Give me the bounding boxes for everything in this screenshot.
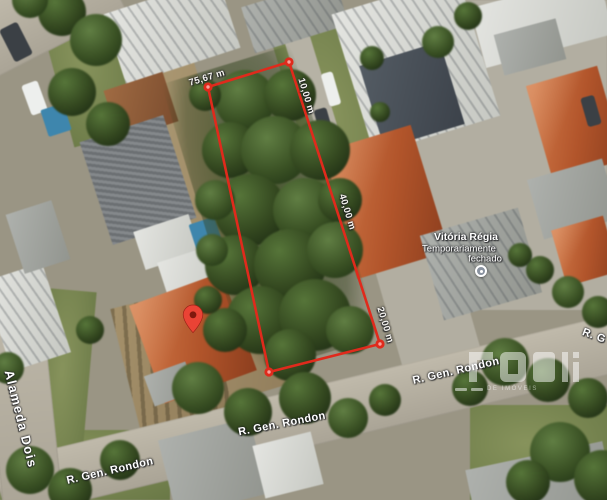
logo-glyph-1 — [469, 352, 493, 382]
satellite-map-viewport[interactable]: 75,67 m 10,00 m 40,00 m 20,00 m Alameda … — [0, 0, 607, 500]
watermark-tagline: DE IMÓVEIS — [455, 386, 607, 392]
logo-glyph-3 — [533, 352, 555, 382]
map-pin-icon[interactable] — [183, 305, 203, 333]
poi-name-label[interactable]: Vitória Régia — [434, 231, 498, 243]
poi-marker-icon[interactable] — [475, 265, 487, 277]
logo-glyph-4 — [562, 352, 580, 382]
watermark-tagline-illegible — [455, 388, 467, 391]
logo-glyph-2 — [500, 352, 526, 382]
watermark-logo-glyphs — [469, 350, 607, 382]
watermark-tagline-text: DE IMÓVEIS — [487, 386, 538, 392]
poi-status-line2: fechado — [468, 254, 502, 265]
watermark-logo: DE IMÓVEIS — [455, 350, 607, 392]
parcel-vertex-markers — [203, 57, 384, 376]
watermark-tagline-illegible — [471, 388, 483, 391]
